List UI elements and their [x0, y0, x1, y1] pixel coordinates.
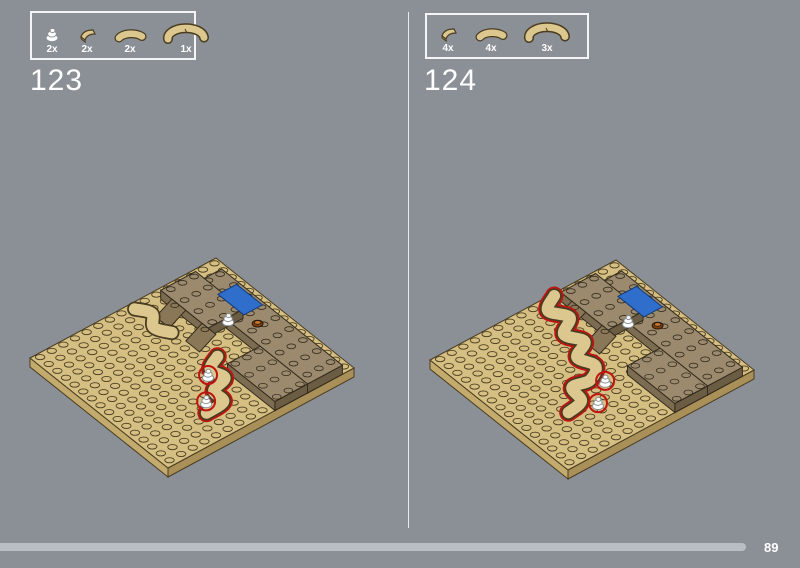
step-123-build-illustration — [16, 234, 372, 486]
part-count: 1x — [180, 45, 191, 55]
progress-scrollbar[interactable] — [0, 543, 746, 551]
parts-box-step-123: 2x 2x 2x 1x — [30, 11, 196, 60]
part-count: 2x — [46, 45, 57, 55]
tan-curved-macaroni-tile-icon — [112, 22, 148, 44]
part-item: 2x — [42, 22, 62, 55]
part-item: 2x — [76, 22, 98, 55]
part-count: 4x — [485, 44, 496, 54]
white-spiral-shell-icon — [42, 22, 62, 44]
panel-divider — [408, 12, 409, 528]
part-item: 4x — [473, 21, 509, 54]
tan-quarter-round-tile-icon — [437, 21, 459, 43]
step-number-124: 124 — [424, 66, 477, 96]
part-count: 4x — [442, 44, 453, 54]
step-124-build-illustration — [416, 236, 772, 488]
page-number: 89 — [764, 540, 794, 555]
tan-quarter-round-tile-icon — [76, 22, 98, 44]
part-item: 3x — [523, 21, 571, 54]
parts-box-step-124: 4x 4x 3x — [425, 13, 589, 59]
part-count: 3x — [541, 44, 552, 54]
part-count: 2x — [81, 45, 92, 55]
part-item: 2x — [112, 22, 148, 55]
tan-large-curved-tile-icon — [523, 21, 571, 43]
part-item: 4x — [437, 21, 459, 54]
part-count: 2x — [124, 45, 135, 55]
tan-curved-macaroni-tile-icon — [473, 21, 509, 43]
step-number-123: 123 — [30, 66, 83, 96]
part-item: 1x — [162, 22, 210, 55]
tan-large-curved-tile-icon — [162, 22, 210, 44]
